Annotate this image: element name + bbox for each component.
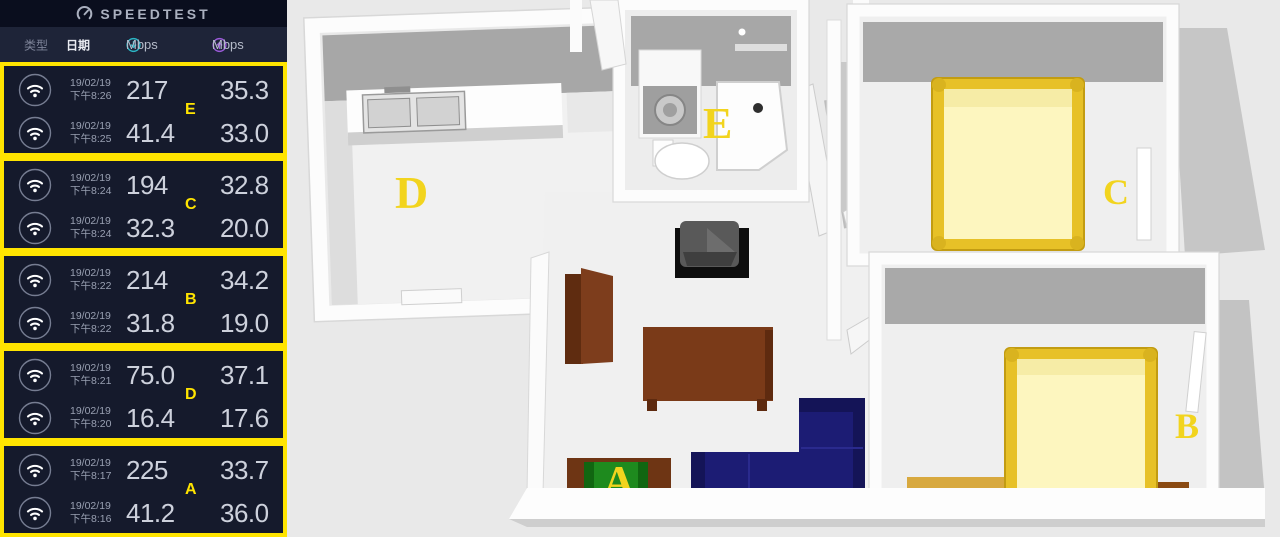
cabinet-side (565, 274, 583, 364)
result-date: 19/02/19下午8:25 (70, 120, 111, 146)
download-value: 75.0 (126, 360, 175, 391)
coffee-table-leg-right (757, 399, 767, 411)
toilet-bowl (655, 143, 709, 179)
result-row[interactable]: 19/02/19下午8:2231.819.0 (4, 301, 283, 345)
result-date: 19/02/19下午8:16 (70, 500, 111, 526)
result-date: 19/02/19下午8:17 (70, 457, 111, 483)
result-date: 19/02/19下午8:26 (70, 77, 111, 103)
result-group: 19/02/19下午8:2221434.219/02/19下午8:2231.81… (0, 252, 287, 347)
room-label-bedroom-bottom: B (1175, 406, 1199, 446)
bed-bottom-post-1 (1005, 348, 1019, 362)
upload-value: 32.8 (220, 170, 269, 201)
upload-value: 37.1 (220, 360, 269, 391)
download-value: 214 (126, 265, 168, 296)
bathroom-light (739, 29, 746, 36)
result-date: 19/02/19下午8:24 (70, 215, 111, 241)
result-date: 19/02/19下午8:22 (70, 267, 111, 293)
floorplan: D (287, 0, 1280, 537)
upload-value: 20.0 (220, 213, 269, 244)
bottom-outer-wall (509, 488, 1265, 519)
result-group: 19/02/19下午8:2621735.319/02/19下午8:2541.43… (0, 62, 287, 157)
wifi-icon (18, 116, 52, 150)
bed-top-post-4 (1070, 236, 1084, 250)
bedroom-bottom-far-wall-shadow (885, 268, 1205, 324)
download-unit-label: Mbps (126, 37, 158, 52)
upload-value: 17.6 (220, 403, 269, 434)
upload-value: 34.2 (220, 265, 269, 296)
result-row[interactable]: 19/02/19下午8:2175.037.1 (4, 353, 283, 397)
ottoman-front (683, 252, 737, 266)
location-label: B (185, 291, 197, 309)
download-value: 31.8 (126, 308, 175, 339)
result-date: 19/02/19下午8:21 (70, 362, 111, 388)
result-row[interactable]: 19/02/19下午8:2621735.3 (4, 68, 283, 112)
floorplan-image: D (287, 0, 1280, 537)
location-label: A (185, 481, 197, 499)
download-value: 194 (126, 170, 168, 201)
bedroom-top-room (847, 4, 1179, 266)
result-group: 19/02/19下午8:1722533.719/02/19下午8:1641.23… (0, 442, 287, 537)
wifi-icon (18, 401, 52, 435)
washing-machine-drum (663, 103, 677, 117)
upload-unit-label: Mbps (212, 37, 244, 52)
result-row[interactable]: 19/02/19下午8:2432.320.0 (4, 206, 283, 250)
download-value: 217 (126, 75, 168, 106)
bed-top-mattress (944, 89, 1072, 239)
speedtest-panel: SPEEDTEST 类型 日期 Mbps Mbps 19/02/19下午8: (0, 0, 287, 537)
wifi-icon (18, 306, 52, 340)
result-date: 19/02/19下午8:20 (70, 405, 111, 431)
coffee-table-top (643, 327, 773, 401)
kitchen-door-sill (401, 289, 461, 305)
bed-top-pillow-shade (944, 89, 1072, 107)
download-value: 41.2 (126, 498, 175, 529)
column-type[interactable]: 类型 (24, 36, 48, 53)
coffee-table-leg-left (647, 399, 657, 411)
column-upload[interactable]: Mbps (212, 37, 227, 52)
upload-value: 33.7 (220, 455, 269, 486)
results-list: 19/02/19下午8:2621735.319/02/19下午8:2541.43… (0, 62, 287, 537)
app-title: SPEEDTEST (100, 6, 210, 22)
result-group: 19/02/19下午8:2175.037.119/02/19下午8:2016.4… (0, 347, 287, 442)
column-header: 类型 日期 Mbps Mbps (0, 27, 287, 62)
download-value: 32.3 (126, 213, 175, 244)
location-label: D (185, 386, 197, 404)
room-label-kitchen: D (395, 167, 428, 218)
upload-value: 35.3 (220, 75, 269, 106)
bathroom-towel-bar (735, 44, 787, 51)
upload-value: 19.0 (220, 308, 269, 339)
result-date: 19/02/19下午8:24 (70, 172, 111, 198)
column-date[interactable]: 日期 (66, 36, 90, 53)
column-download[interactable]: Mbps (126, 37, 141, 52)
bed-top-post-2 (1070, 78, 1084, 92)
wifi-icon (18, 263, 52, 297)
wifi-icon (18, 73, 52, 107)
wifi-icon (18, 453, 52, 487)
download-value: 41.4 (126, 118, 175, 149)
result-row[interactable]: 19/02/19下午8:2221434.2 (4, 258, 283, 302)
bed-bottom-pillow-shade (1017, 359, 1145, 375)
coffee-table-edge (765, 330, 773, 400)
bedroom-top-far-wall-shadow (863, 22, 1163, 82)
wall-slab-top-left (570, 0, 582, 52)
bed-top-post-1 (932, 78, 946, 92)
kitchen-faucet (384, 86, 410, 93)
result-row[interactable]: 19/02/19下午8:1722533.7 (4, 448, 283, 492)
app-titlebar: SPEEDTEST (0, 0, 287, 27)
download-value: 225 (126, 455, 168, 486)
upload-value: 36.0 (220, 498, 269, 529)
result-row[interactable]: 19/02/19下午8:2419432.8 (4, 163, 283, 207)
upload-value: 33.0 (220, 118, 269, 149)
bedroom-bottom-room (869, 252, 1219, 512)
kitchen-sink-basin-right (417, 97, 460, 126)
location-label: E (185, 101, 196, 119)
wifi-icon (18, 358, 52, 392)
location-label: C (185, 196, 197, 214)
speedometer-icon (76, 5, 93, 22)
bottom-outer-wall-shadow (509, 519, 1265, 527)
room-label-bedroom-top: C (1103, 172, 1129, 212)
room-label-bathroom: E (703, 99, 732, 148)
result-row[interactable]: 19/02/19下午8:2541.433.0 (4, 111, 283, 155)
wifi-icon (18, 211, 52, 245)
bed-bottom-mattress (1017, 359, 1145, 497)
bed-top-post-3 (932, 236, 946, 250)
result-date: 19/02/19下午8:22 (70, 310, 111, 336)
screen: SPEEDTEST 类型 日期 Mbps Mbps 19/02/19下午8: (0, 0, 1280, 537)
result-row[interactable]: 19/02/19下午8:1641.236.0 (4, 491, 283, 535)
kitchen-sink-basin-left (368, 98, 411, 127)
download-value: 16.4 (126, 403, 175, 434)
result-group: 19/02/19下午8:2419432.819/02/19下午8:2432.32… (0, 157, 287, 252)
bed-bottom-post-2 (1143, 348, 1157, 362)
wifi-icon (18, 168, 52, 202)
cabinet-front (581, 268, 613, 364)
bedroom-top-window (1137, 148, 1151, 240)
wifi-icon (18, 496, 52, 530)
shower-drain (753, 103, 763, 113)
result-row[interactable]: 19/02/19下午8:2016.417.6 (4, 396, 283, 440)
hallway-wall (827, 20, 841, 340)
